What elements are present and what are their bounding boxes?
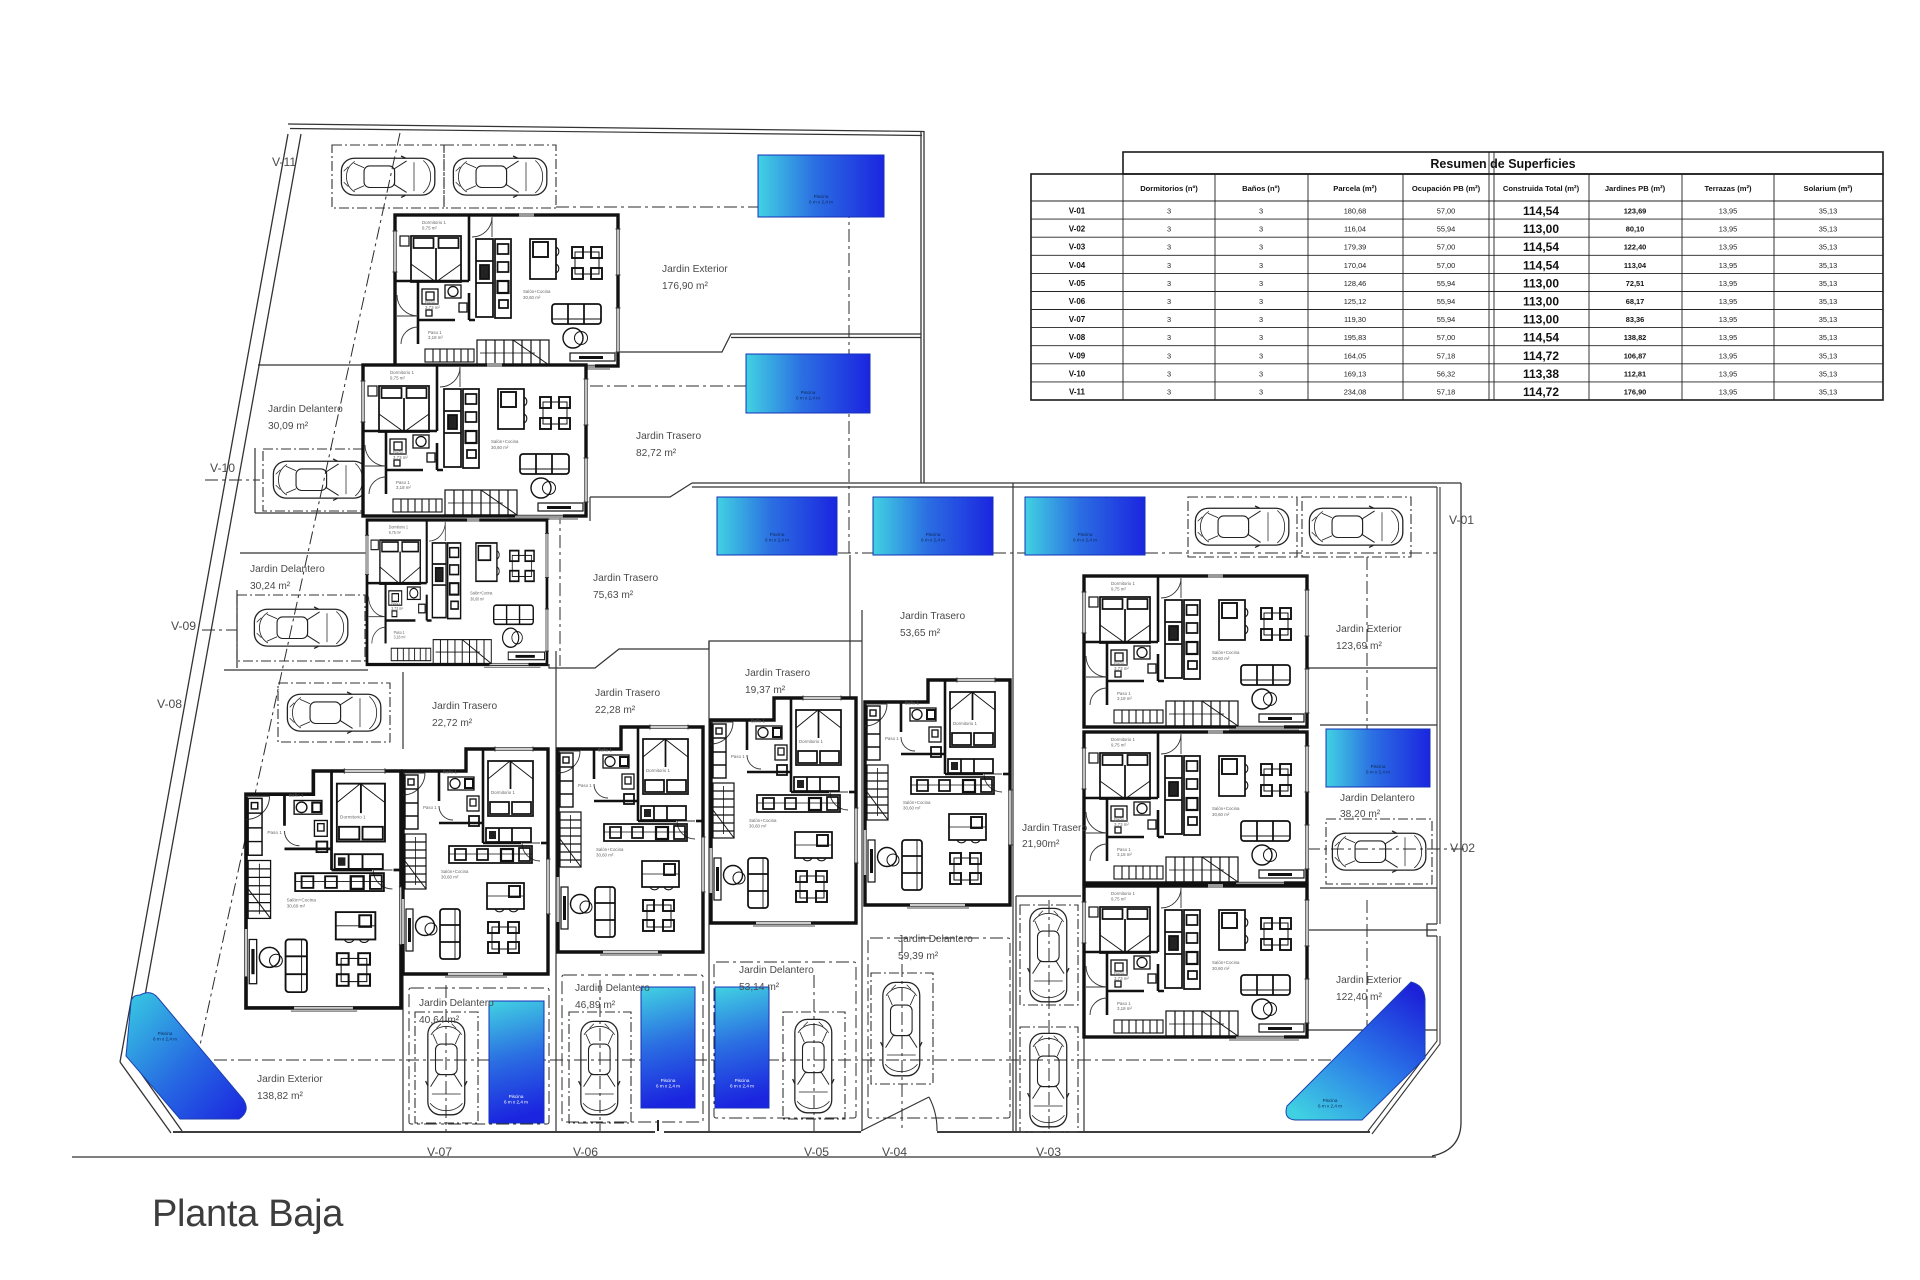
svg-text:119,30: 119,30 (1344, 315, 1366, 324)
svg-text:30,09 m²: 30,09 m² (268, 421, 309, 432)
svg-text:114,72: 114,72 (1523, 349, 1559, 363)
svg-text:V-09: V-09 (1069, 351, 1086, 360)
svg-text:3: 3 (1259, 261, 1263, 270)
svg-text:Jardin Exterior: Jardin Exterior (1336, 624, 1402, 635)
svg-text:176,90: 176,90 (1624, 388, 1647, 397)
svg-text:57,00: 57,00 (1437, 261, 1456, 270)
svg-text:179,39: 179,39 (1344, 243, 1367, 252)
svg-text:112,81: 112,81 (1624, 369, 1646, 378)
svg-text:35,13: 35,13 (1819, 351, 1838, 360)
svg-text:V-08: V-08 (1069, 333, 1086, 342)
svg-text:13,95: 13,95 (1719, 279, 1738, 288)
svg-text:Jardin Trasero: Jardin Trasero (636, 431, 701, 442)
svg-text:3: 3 (1259, 388, 1263, 397)
svg-text:V-10: V-10 (1069, 369, 1086, 378)
svg-text:35,13: 35,13 (1819, 297, 1838, 306)
svg-text:V-04: V-04 (882, 1145, 907, 1159)
svg-text:53,65 m²: 53,65 m² (900, 628, 941, 639)
svg-text:72,51: 72,51 (1626, 279, 1645, 288)
svg-text:113,38: 113,38 (1523, 367, 1559, 381)
svg-text:3: 3 (1259, 279, 1263, 288)
svg-text:V-05: V-05 (804, 1145, 829, 1159)
svg-text:170,04: 170,04 (1344, 261, 1367, 270)
svg-text:75,63 m²: 75,63 m² (593, 590, 634, 601)
svg-text:22,28 m²: 22,28 m² (595, 705, 636, 716)
svg-text:V-08: V-08 (157, 697, 182, 711)
svg-text:114,54: 114,54 (1523, 204, 1559, 218)
svg-text:V-11: V-11 (1069, 388, 1086, 397)
svg-text:Jardin Trasero: Jardin Trasero (593, 573, 658, 584)
svg-text:3: 3 (1167, 369, 1171, 378)
svg-text:Dormitorios (nº): Dormitorios (nº) (1140, 184, 1198, 193)
svg-text:180,68: 180,68 (1344, 207, 1367, 216)
svg-text:Solarium (m²): Solarium (m²) (1804, 184, 1853, 193)
svg-text:13,95: 13,95 (1719, 351, 1738, 360)
svg-text:234,08: 234,08 (1344, 388, 1367, 397)
svg-text:Baños (nº): Baños (nº) (1242, 184, 1280, 193)
svg-text:128,46: 128,46 (1344, 279, 1367, 288)
svg-text:V-06: V-06 (1069, 297, 1086, 306)
svg-text:30,24 m²: 30,24 m² (250, 581, 291, 592)
svg-text:114,72: 114,72 (1523, 385, 1559, 399)
svg-text:3: 3 (1259, 351, 1263, 360)
svg-text:3: 3 (1167, 388, 1171, 397)
svg-text:V-07: V-07 (427, 1145, 452, 1159)
svg-text:55,94: 55,94 (1437, 279, 1456, 288)
svg-text:125,12: 125,12 (1344, 297, 1367, 306)
svg-text:21,90m²: 21,90m² (1022, 839, 1060, 850)
svg-text:Jardin Trasero: Jardin Trasero (745, 668, 810, 679)
svg-text:Jardin Trasero: Jardin Trasero (432, 701, 497, 712)
svg-text:113,00: 113,00 (1523, 276, 1559, 290)
svg-text:3: 3 (1167, 333, 1171, 342)
svg-text:Jardin Delantero: Jardin Delantero (419, 998, 494, 1009)
svg-text:57,00: 57,00 (1437, 243, 1456, 252)
svg-text:Terrazas (m²): Terrazas (m²) (1704, 184, 1752, 193)
svg-text:Parcela (m²): Parcela (m²) (1333, 184, 1377, 193)
svg-text:V-06: V-06 (573, 1145, 598, 1159)
svg-text:V-03: V-03 (1069, 243, 1086, 252)
svg-text:164,05: 164,05 (1344, 351, 1367, 360)
svg-text:3: 3 (1259, 243, 1263, 252)
svg-text:13,95: 13,95 (1719, 243, 1738, 252)
svg-text:13,95: 13,95 (1719, 315, 1738, 324)
svg-text:Jardin Exterior: Jardin Exterior (257, 1074, 323, 1085)
svg-text:Ocupación PB (m²): Ocupación PB (m²) (1412, 184, 1481, 193)
svg-text:3: 3 (1259, 297, 1263, 306)
svg-text:114,54: 114,54 (1523, 331, 1559, 345)
svg-text:Jardin Delantero: Jardin Delantero (250, 564, 325, 575)
svg-text:123,69 m²: 123,69 m² (1336, 641, 1382, 652)
svg-text:3: 3 (1259, 315, 1263, 324)
svg-text:35,13: 35,13 (1819, 261, 1838, 270)
svg-text:13,95: 13,95 (1719, 261, 1738, 270)
svg-text:35,13: 35,13 (1819, 243, 1838, 252)
svg-text:Jardin Delantero: Jardin Delantero (739, 965, 814, 976)
svg-text:114,54: 114,54 (1523, 240, 1559, 254)
svg-text:Jardin Trasero: Jardin Trasero (1022, 823, 1087, 834)
svg-text:13,95: 13,95 (1719, 207, 1738, 216)
svg-text:22,72 m²: 22,72 m² (432, 718, 473, 729)
svg-text:35,13: 35,13 (1819, 388, 1838, 397)
svg-text:59,39 m²: 59,39 m² (898, 951, 939, 962)
svg-text:3: 3 (1167, 225, 1171, 234)
svg-text:56,32: 56,32 (1437, 369, 1456, 378)
svg-text:57,18: 57,18 (1437, 351, 1456, 360)
svg-text:68,17: 68,17 (1626, 297, 1645, 306)
svg-text:106,87: 106,87 (1624, 351, 1647, 360)
svg-text:123,69: 123,69 (1624, 207, 1647, 216)
svg-text:13,95: 13,95 (1719, 225, 1738, 234)
svg-text:Jardin Exterior: Jardin Exterior (662, 264, 728, 275)
svg-text:138,82: 138,82 (1624, 333, 1647, 342)
svg-text:169,13: 169,13 (1344, 369, 1367, 378)
svg-text:35,13: 35,13 (1819, 279, 1838, 288)
svg-text:46,89 m²: 46,89 m² (575, 1000, 616, 1011)
svg-text:V-01: V-01 (1069, 207, 1086, 216)
svg-text:13,95: 13,95 (1719, 388, 1738, 397)
svg-text:Jardines PB (m²): Jardines PB (m²) (1605, 184, 1666, 193)
svg-text:V-09: V-09 (171, 619, 196, 633)
svg-text:3: 3 (1167, 279, 1171, 288)
svg-text:3: 3 (1259, 207, 1263, 216)
svg-text:3: 3 (1259, 333, 1263, 342)
svg-text:V-04: V-04 (1069, 261, 1086, 270)
svg-text:Planta Baja: Planta Baja (152, 1193, 344, 1235)
svg-text:35,13: 35,13 (1819, 369, 1838, 378)
svg-text:V-11: V-11 (272, 155, 296, 169)
svg-text:Construida Total (m²): Construida Total (m²) (1503, 184, 1580, 193)
svg-text:V-05: V-05 (1069, 279, 1086, 288)
svg-text:40,64 m²: 40,64 m² (419, 1015, 460, 1026)
svg-text:122,40: 122,40 (1624, 243, 1647, 252)
svg-text:83,36: 83,36 (1626, 315, 1645, 324)
svg-text:3: 3 (1167, 315, 1171, 324)
svg-text:114,54: 114,54 (1523, 258, 1559, 272)
svg-text:53,14 m²: 53,14 m² (739, 982, 780, 993)
svg-text:Jardin Trasero: Jardin Trasero (900, 611, 965, 622)
svg-text:3: 3 (1167, 243, 1171, 252)
svg-text:V-03: V-03 (1036, 1145, 1061, 1159)
svg-text:113,04: 113,04 (1624, 261, 1647, 270)
svg-text:57,00: 57,00 (1437, 207, 1456, 216)
svg-text:138,82 m²: 138,82 m² (257, 1091, 303, 1102)
svg-text:V-02: V-02 (1450, 841, 1475, 855)
svg-text:80,10: 80,10 (1626, 225, 1645, 234)
svg-text:3: 3 (1167, 261, 1171, 270)
svg-text:3: 3 (1167, 207, 1171, 216)
svg-text:35,13: 35,13 (1819, 315, 1838, 324)
svg-text:Jardin Exterior: Jardin Exterior (1336, 975, 1402, 986)
svg-text:55,94: 55,94 (1437, 297, 1456, 306)
svg-text:55,94: 55,94 (1437, 315, 1456, 324)
svg-text:3: 3 (1259, 369, 1263, 378)
svg-text:113,00: 113,00 (1523, 313, 1559, 327)
svg-text:35,13: 35,13 (1819, 225, 1838, 234)
svg-text:176,90 m²: 176,90 m² (662, 281, 708, 292)
svg-text:57,18: 57,18 (1437, 388, 1456, 397)
svg-text:13,95: 13,95 (1719, 333, 1738, 342)
svg-text:19,37 m²: 19,37 m² (745, 685, 786, 696)
svg-text:195,83: 195,83 (1344, 333, 1367, 342)
svg-text:Jardin Delantero: Jardin Delantero (898, 934, 973, 945)
svg-text:V-10: V-10 (210, 461, 235, 475)
svg-text:3: 3 (1167, 297, 1171, 306)
svg-text:82,72 m²: 82,72 m² (636, 448, 677, 459)
svg-text:38,20 m²: 38,20 m² (1340, 809, 1381, 820)
svg-text:116,04: 116,04 (1344, 225, 1366, 234)
svg-text:V-07: V-07 (1069, 315, 1086, 324)
svg-text:Jardin Delantero: Jardin Delantero (268, 404, 343, 415)
svg-text:Jardin Delantero: Jardin Delantero (1340, 793, 1415, 804)
svg-text:Jardin Trasero: Jardin Trasero (595, 688, 660, 699)
svg-text:55,94: 55,94 (1437, 225, 1456, 234)
svg-text:Resumen de Superficies: Resumen de Superficies (1430, 157, 1575, 171)
svg-text:13,95: 13,95 (1719, 297, 1738, 306)
svg-text:Jardin Delantero: Jardin Delantero (575, 983, 650, 994)
svg-text:3: 3 (1259, 225, 1263, 234)
svg-text:122,40 m²: 122,40 m² (1336, 992, 1382, 1003)
svg-text:V-01: V-01 (1449, 513, 1474, 527)
svg-text:35,13: 35,13 (1819, 333, 1838, 342)
svg-text:57,00: 57,00 (1437, 333, 1456, 342)
svg-text:113,00: 113,00 (1523, 295, 1559, 309)
svg-text:3: 3 (1167, 351, 1171, 360)
svg-text:V-02: V-02 (1069, 225, 1086, 234)
svg-text:13,95: 13,95 (1719, 369, 1738, 378)
svg-text:113,00: 113,00 (1523, 222, 1559, 236)
svg-text:35,13: 35,13 (1819, 207, 1838, 216)
